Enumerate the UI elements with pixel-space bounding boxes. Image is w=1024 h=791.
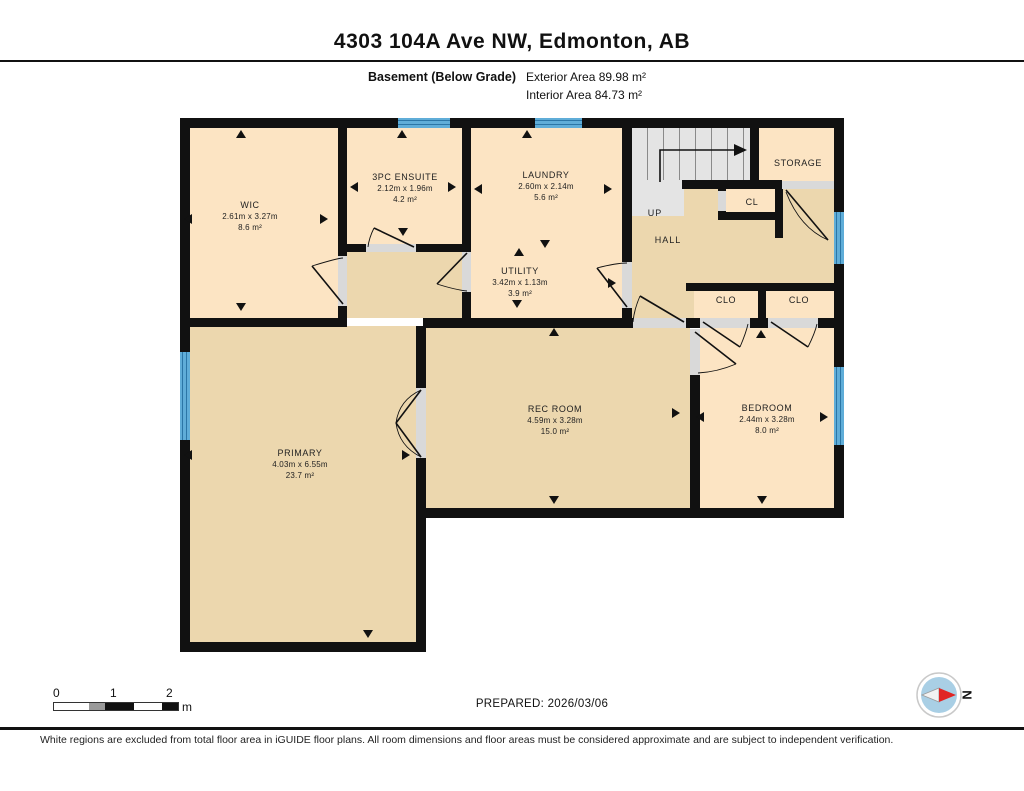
wall <box>750 118 759 182</box>
wall <box>690 374 700 514</box>
dimension-arrow <box>522 130 532 138</box>
wall <box>423 318 636 328</box>
door-opening <box>416 388 426 458</box>
label-primary: PRIMARY 4.03m x 6.55m 23.7 m² <box>240 448 360 481</box>
dimension-arrow <box>549 328 559 336</box>
corridor <box>347 252 471 318</box>
door-opening <box>768 318 818 328</box>
scale-unit: m <box>182 700 192 714</box>
room-primary <box>190 326 416 642</box>
dimension-arrow <box>549 496 559 504</box>
dimension-arrow <box>184 214 192 224</box>
dimension-arrow <box>184 450 192 460</box>
wall <box>416 458 426 652</box>
footer-divider <box>0 727 1024 730</box>
dimension-arrow <box>474 184 482 194</box>
door-opening <box>366 244 416 252</box>
dimension-arrow <box>350 182 358 192</box>
dimension-arrow <box>820 412 828 422</box>
dimension-arrow <box>672 408 680 418</box>
scale-tick: 1 <box>110 686 117 700</box>
label-up: UP <box>637 208 673 219</box>
label-wic: WIC 2.61m x 3.27m 8.6 m² <box>180 200 320 233</box>
dimension-arrow <box>757 496 767 504</box>
door-opening <box>718 191 726 211</box>
dimension-arrow <box>397 130 407 138</box>
door-opening <box>622 262 632 308</box>
label-hall: HALL <box>628 235 708 246</box>
wall <box>180 642 426 652</box>
window <box>834 367 844 445</box>
exterior-area: Exterior Area 89.98 m² <box>526 70 646 84</box>
page-title: 4303 104A Ave NW, Edmonton, AB <box>0 30 1024 54</box>
scale-tick: 2 <box>166 686 173 700</box>
door-opening <box>700 318 750 328</box>
title-divider <box>0 60 1024 62</box>
wall <box>180 318 347 327</box>
floorplan-page: 4303 104A Ave NW, Edmonton, AB Basement … <box>0 0 1024 791</box>
prepared-date: PREPARED: 2026/03/06 <box>362 698 722 710</box>
dimension-arrow <box>756 330 766 338</box>
door-opening <box>633 318 686 328</box>
dimension-arrow <box>402 450 410 460</box>
label-bedroom: BEDROOM 2.44m x 3.28m 8.0 m² <box>705 403 829 436</box>
window <box>535 118 582 128</box>
door-opening <box>690 329 700 375</box>
wall <box>718 212 783 220</box>
label-rec: REC ROOM 4.59m x 3.28m 15.0 m² <box>495 404 615 437</box>
dimension-arrow <box>363 630 373 638</box>
dimension-arrow <box>320 214 328 224</box>
wall <box>775 189 783 238</box>
dimension-arrow <box>696 412 704 422</box>
dimension-arrow <box>540 240 550 248</box>
label-ensuite: 3PC ENSUITE 2.12m x 1.96m 4.2 m² <box>345 172 465 205</box>
dimension-arrow <box>236 130 246 138</box>
dimension-arrow <box>398 228 408 236</box>
window <box>398 118 450 128</box>
floor-label: Basement (Below Grade) <box>250 70 516 84</box>
dimension-arrow <box>604 184 612 194</box>
dimension-arrow <box>512 300 522 308</box>
scale-bar: 0 1 2 m <box>50 686 210 716</box>
wall <box>682 180 782 189</box>
label-storage: STORAGE <box>748 158 848 169</box>
dimension-arrow <box>448 182 456 192</box>
dimension-arrow <box>608 278 616 288</box>
wall <box>758 283 766 326</box>
door-opening <box>338 256 347 306</box>
window <box>180 352 190 440</box>
dimension-arrow <box>236 303 246 311</box>
window <box>834 212 844 264</box>
room-storage <box>759 128 834 182</box>
label-clo-left: CLO <box>694 295 758 306</box>
stairs <box>632 128 750 182</box>
disclaimer-text: White regions are excluded from total fl… <box>40 734 1000 746</box>
dimension-arrow <box>514 248 524 256</box>
compass-north-label: N <box>960 690 975 699</box>
compass-icon: N <box>908 668 988 724</box>
label-cl: CL <box>732 197 772 208</box>
label-clo-right: CLO <box>766 295 832 306</box>
label-utility: UTILITY 3.42m x 1.13m 3.9 m² <box>458 266 582 299</box>
wall <box>416 508 844 518</box>
wall <box>180 118 844 128</box>
interior-area: Interior Area 84.73 m² <box>526 88 642 102</box>
scale-tick: 0 <box>53 686 60 700</box>
wall <box>416 326 426 388</box>
scale-bar-segments <box>53 702 179 711</box>
door-opening <box>782 181 834 189</box>
label-laundry: LAUNDRY 2.60m x 2.14m 5.6 m² <box>486 170 606 203</box>
